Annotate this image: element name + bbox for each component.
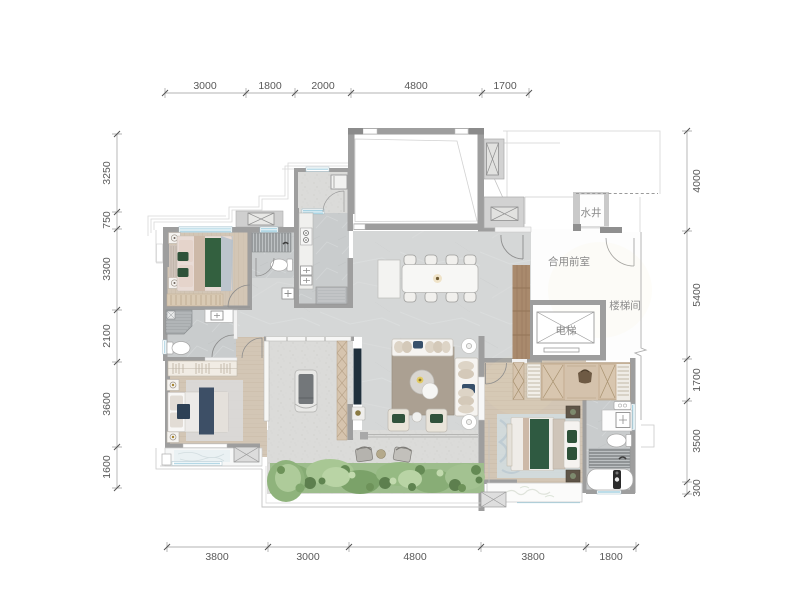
svg-text:3500: 3500 [691,429,703,453]
svg-text:3300: 3300 [101,257,113,281]
svg-text:300: 300 [691,479,703,497]
svg-text:1700: 1700 [691,368,703,392]
svg-text:1600: 1600 [101,455,113,479]
svg-text:750: 750 [101,211,113,229]
svg-text:1700: 1700 [493,80,517,92]
svg-text:1800: 1800 [599,551,623,563]
svg-text:水井: 水井 [581,206,602,219]
svg-text:电梯: 电梯 [556,324,577,337]
svg-text:2000: 2000 [311,80,335,92]
svg-text:1800: 1800 [258,80,282,92]
svg-text:合用前室: 合用前室 [548,255,590,268]
svg-text:3600: 3600 [101,392,113,416]
svg-text:3250: 3250 [101,161,113,185]
svg-text:4800: 4800 [403,551,427,563]
svg-text:3800: 3800 [205,551,229,563]
svg-text:4800: 4800 [404,80,428,92]
svg-text:3800: 3800 [521,551,545,563]
svg-text:5400: 5400 [691,283,703,307]
svg-text:楼梯间: 楼梯间 [609,299,641,312]
svg-text:3000: 3000 [296,551,320,563]
svg-text:2100: 2100 [101,324,113,348]
svg-text:4000: 4000 [691,169,703,193]
svg-text:3000: 3000 [193,80,217,92]
